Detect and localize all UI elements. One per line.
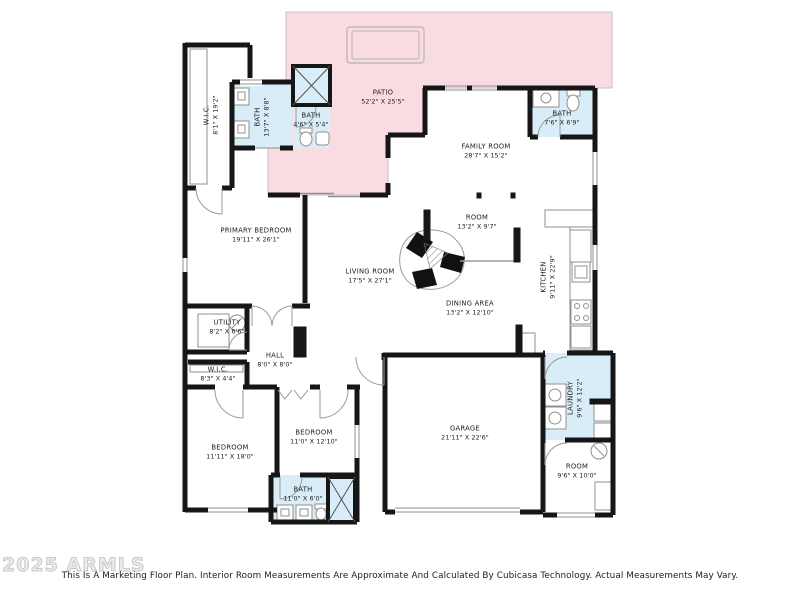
fireplace-icon <box>400 230 514 289</box>
floorplan-drawing <box>0 0 800 600</box>
window <box>557 513 595 517</box>
disclaimer-text: This Is A Marketing Floor Plan. Interior… <box>0 571 800 581</box>
door-arc <box>320 390 348 418</box>
window <box>355 425 359 458</box>
cabinet-icon <box>594 404 613 421</box>
floorplan-canvas: PATIO52'2" X 25'5" W.I.C.8'1" X 19'2" BA… <box>0 0 800 600</box>
window <box>593 245 597 270</box>
cabinet-icon <box>595 482 613 510</box>
door-arc <box>196 188 222 214</box>
window <box>593 152 597 185</box>
stove-icon <box>571 300 591 324</box>
door-arc <box>215 390 243 418</box>
cabinet-icon <box>594 423 613 440</box>
utility-equipment-icon <box>198 314 229 347</box>
closet-shelf-icon <box>190 365 243 372</box>
door-arc <box>545 443 567 465</box>
door-arc <box>252 306 272 326</box>
window <box>240 78 262 86</box>
kitchen-counter-icon <box>545 210 593 227</box>
window <box>181 258 189 272</box>
garage-door <box>395 505 520 515</box>
fridge-icon <box>570 230 591 262</box>
window <box>208 508 248 512</box>
door-arc <box>272 306 292 326</box>
door-arc <box>356 357 384 385</box>
bifold-door <box>278 390 308 399</box>
closet-shelf-icon <box>190 49 207 184</box>
door-arc <box>229 332 247 350</box>
sink-icon <box>316 132 329 145</box>
dishwasher-icon <box>571 326 591 348</box>
